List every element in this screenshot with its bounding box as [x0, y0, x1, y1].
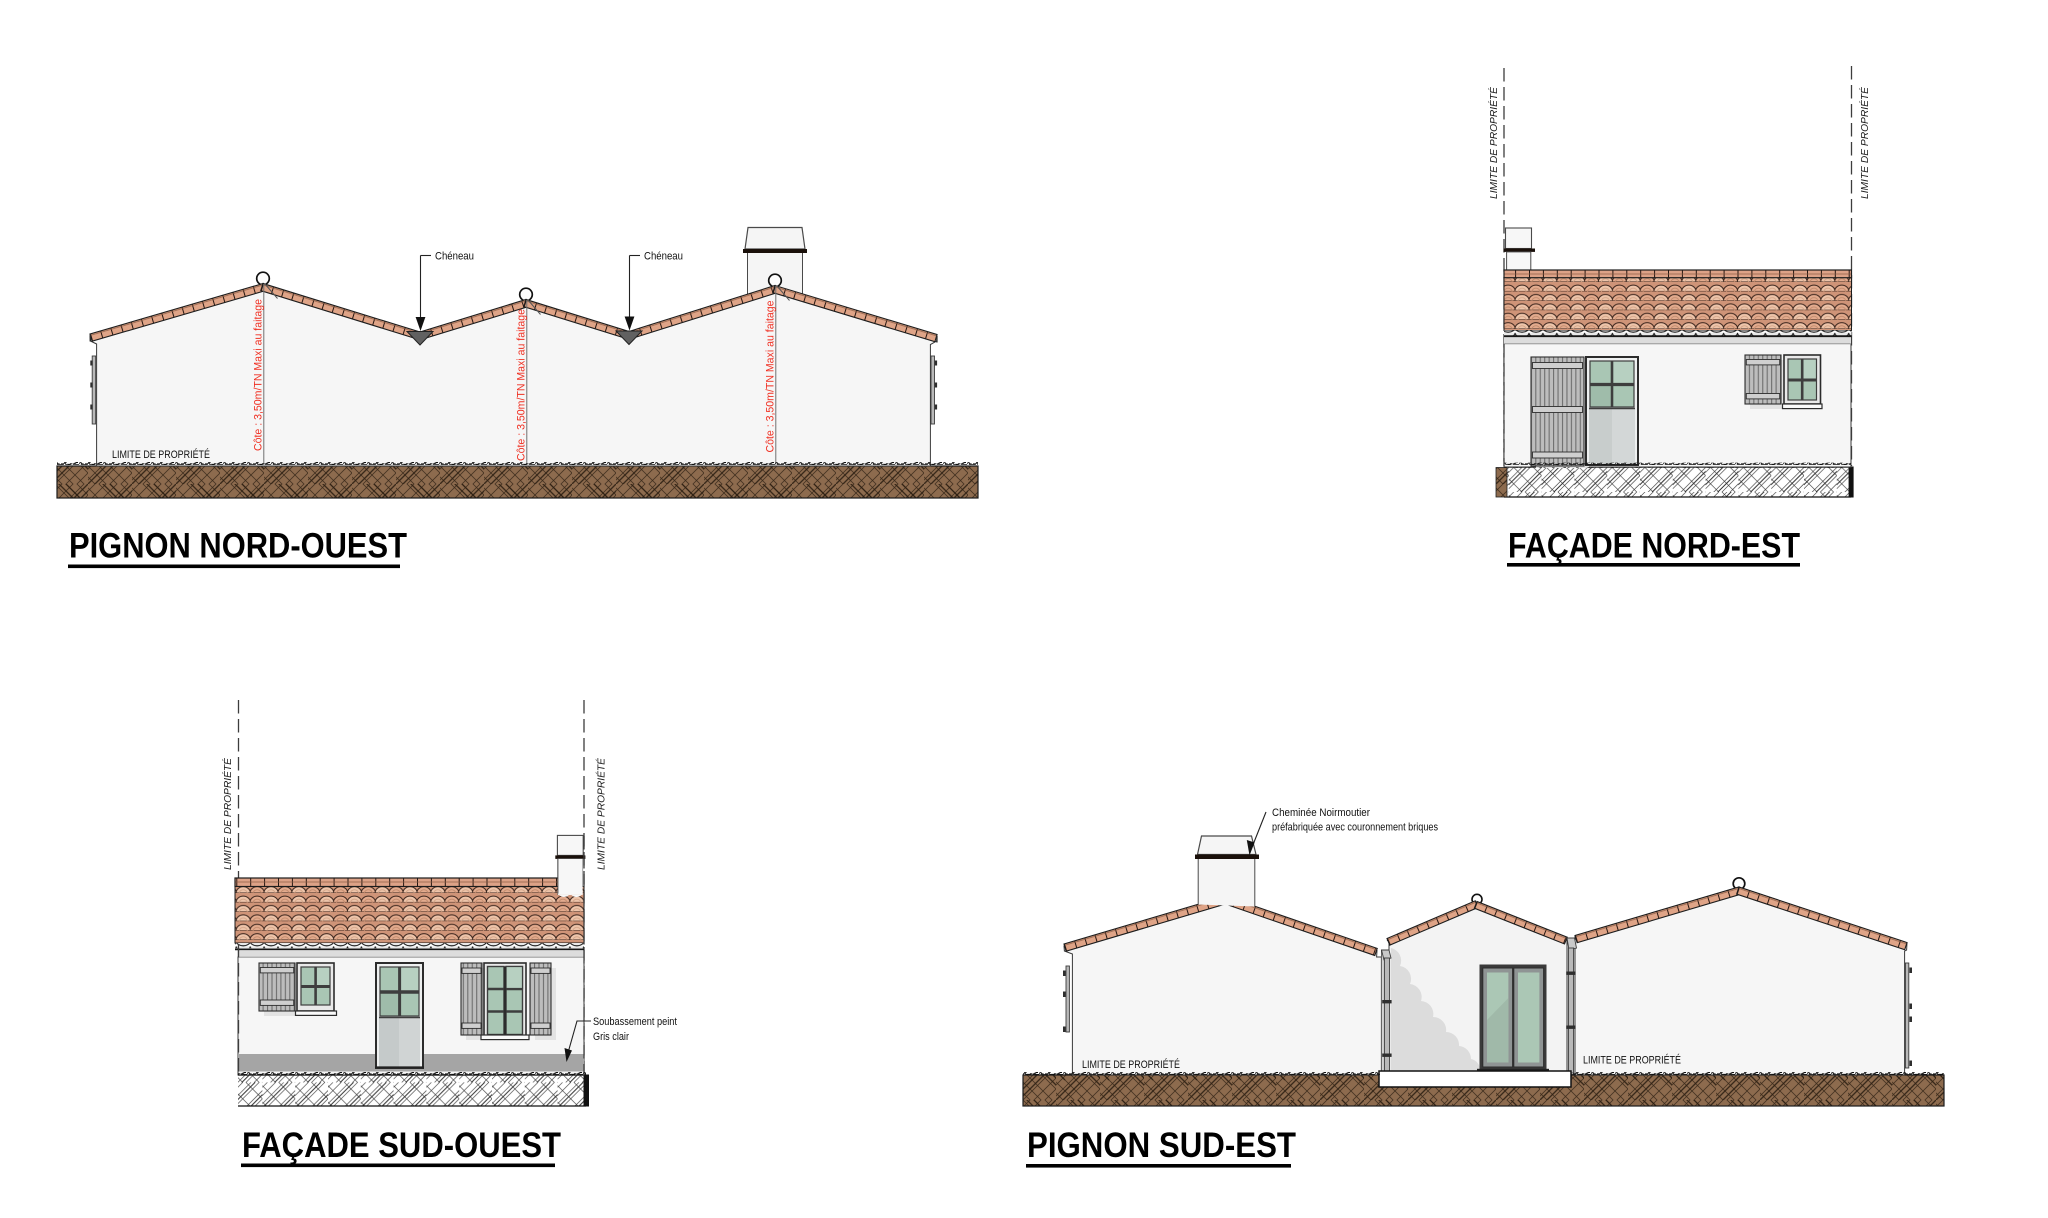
svg-text:Soubassement peint: Soubassement peint — [593, 1016, 677, 1028]
svg-text:préfabriquée avec couronnement: préfabriquée avec couronnement briques — [1272, 822, 1438, 834]
svg-text:Côte : 3,50m/TN Maxi au faitag: Côte : 3,50m/TN Maxi au faitage — [253, 299, 265, 451]
svg-text:Cheminée Noirmoutier: Cheminée Noirmoutier — [1272, 807, 1370, 819]
svg-text:LIMITE DE PROPRIÉTÉ: LIMITE DE PROPRIÉTÉ — [112, 448, 210, 461]
svg-text:Côte : 3,50m/TN Maxi au faitag: Côte : 3,50m/TN Maxi au faitage — [765, 301, 777, 453]
svg-text:FAÇADE SUD-OUEST: FAÇADE SUD-OUEST — [242, 1125, 561, 1165]
svg-text:Gris clair: Gris clair — [593, 1031, 629, 1043]
svg-text:LIMITE DE PROPRIÉTÉ: LIMITE DE PROPRIÉTÉ — [221, 758, 234, 870]
svg-text:FAÇADE NORD-EST: FAÇADE NORD-EST — [1508, 526, 1800, 566]
svg-text:LIMITE DE PROPRIÉTÉ: LIMITE DE PROPRIÉTÉ — [1858, 87, 1871, 199]
svg-text:LIMITE DE PROPRIÉTÉ: LIMITE DE PROPRIÉTÉ — [1487, 87, 1500, 199]
svg-text:Chéneau: Chéneau — [644, 251, 683, 263]
svg-text:PIGNON NORD-OUEST: PIGNON NORD-OUEST — [69, 526, 407, 566]
svg-text:Chéneau: Chéneau — [435, 251, 474, 263]
svg-text:LIMITE DE PROPRIÉTÉ: LIMITE DE PROPRIÉTÉ — [1082, 1058, 1180, 1071]
svg-text:LIMITE DE PROPRIÉTÉ: LIMITE DE PROPRIÉTÉ — [595, 758, 608, 870]
svg-text:Côte : 3,50m/TN Maxi au faitag: Côte : 3,50m/TN Maxi au faitage — [516, 309, 528, 461]
svg-text:LIMITE DE PROPRIÉTÉ: LIMITE DE PROPRIÉTÉ — [1583, 1054, 1681, 1067]
svg-text:PIGNON SUD-EST: PIGNON SUD-EST — [1027, 1125, 1296, 1165]
